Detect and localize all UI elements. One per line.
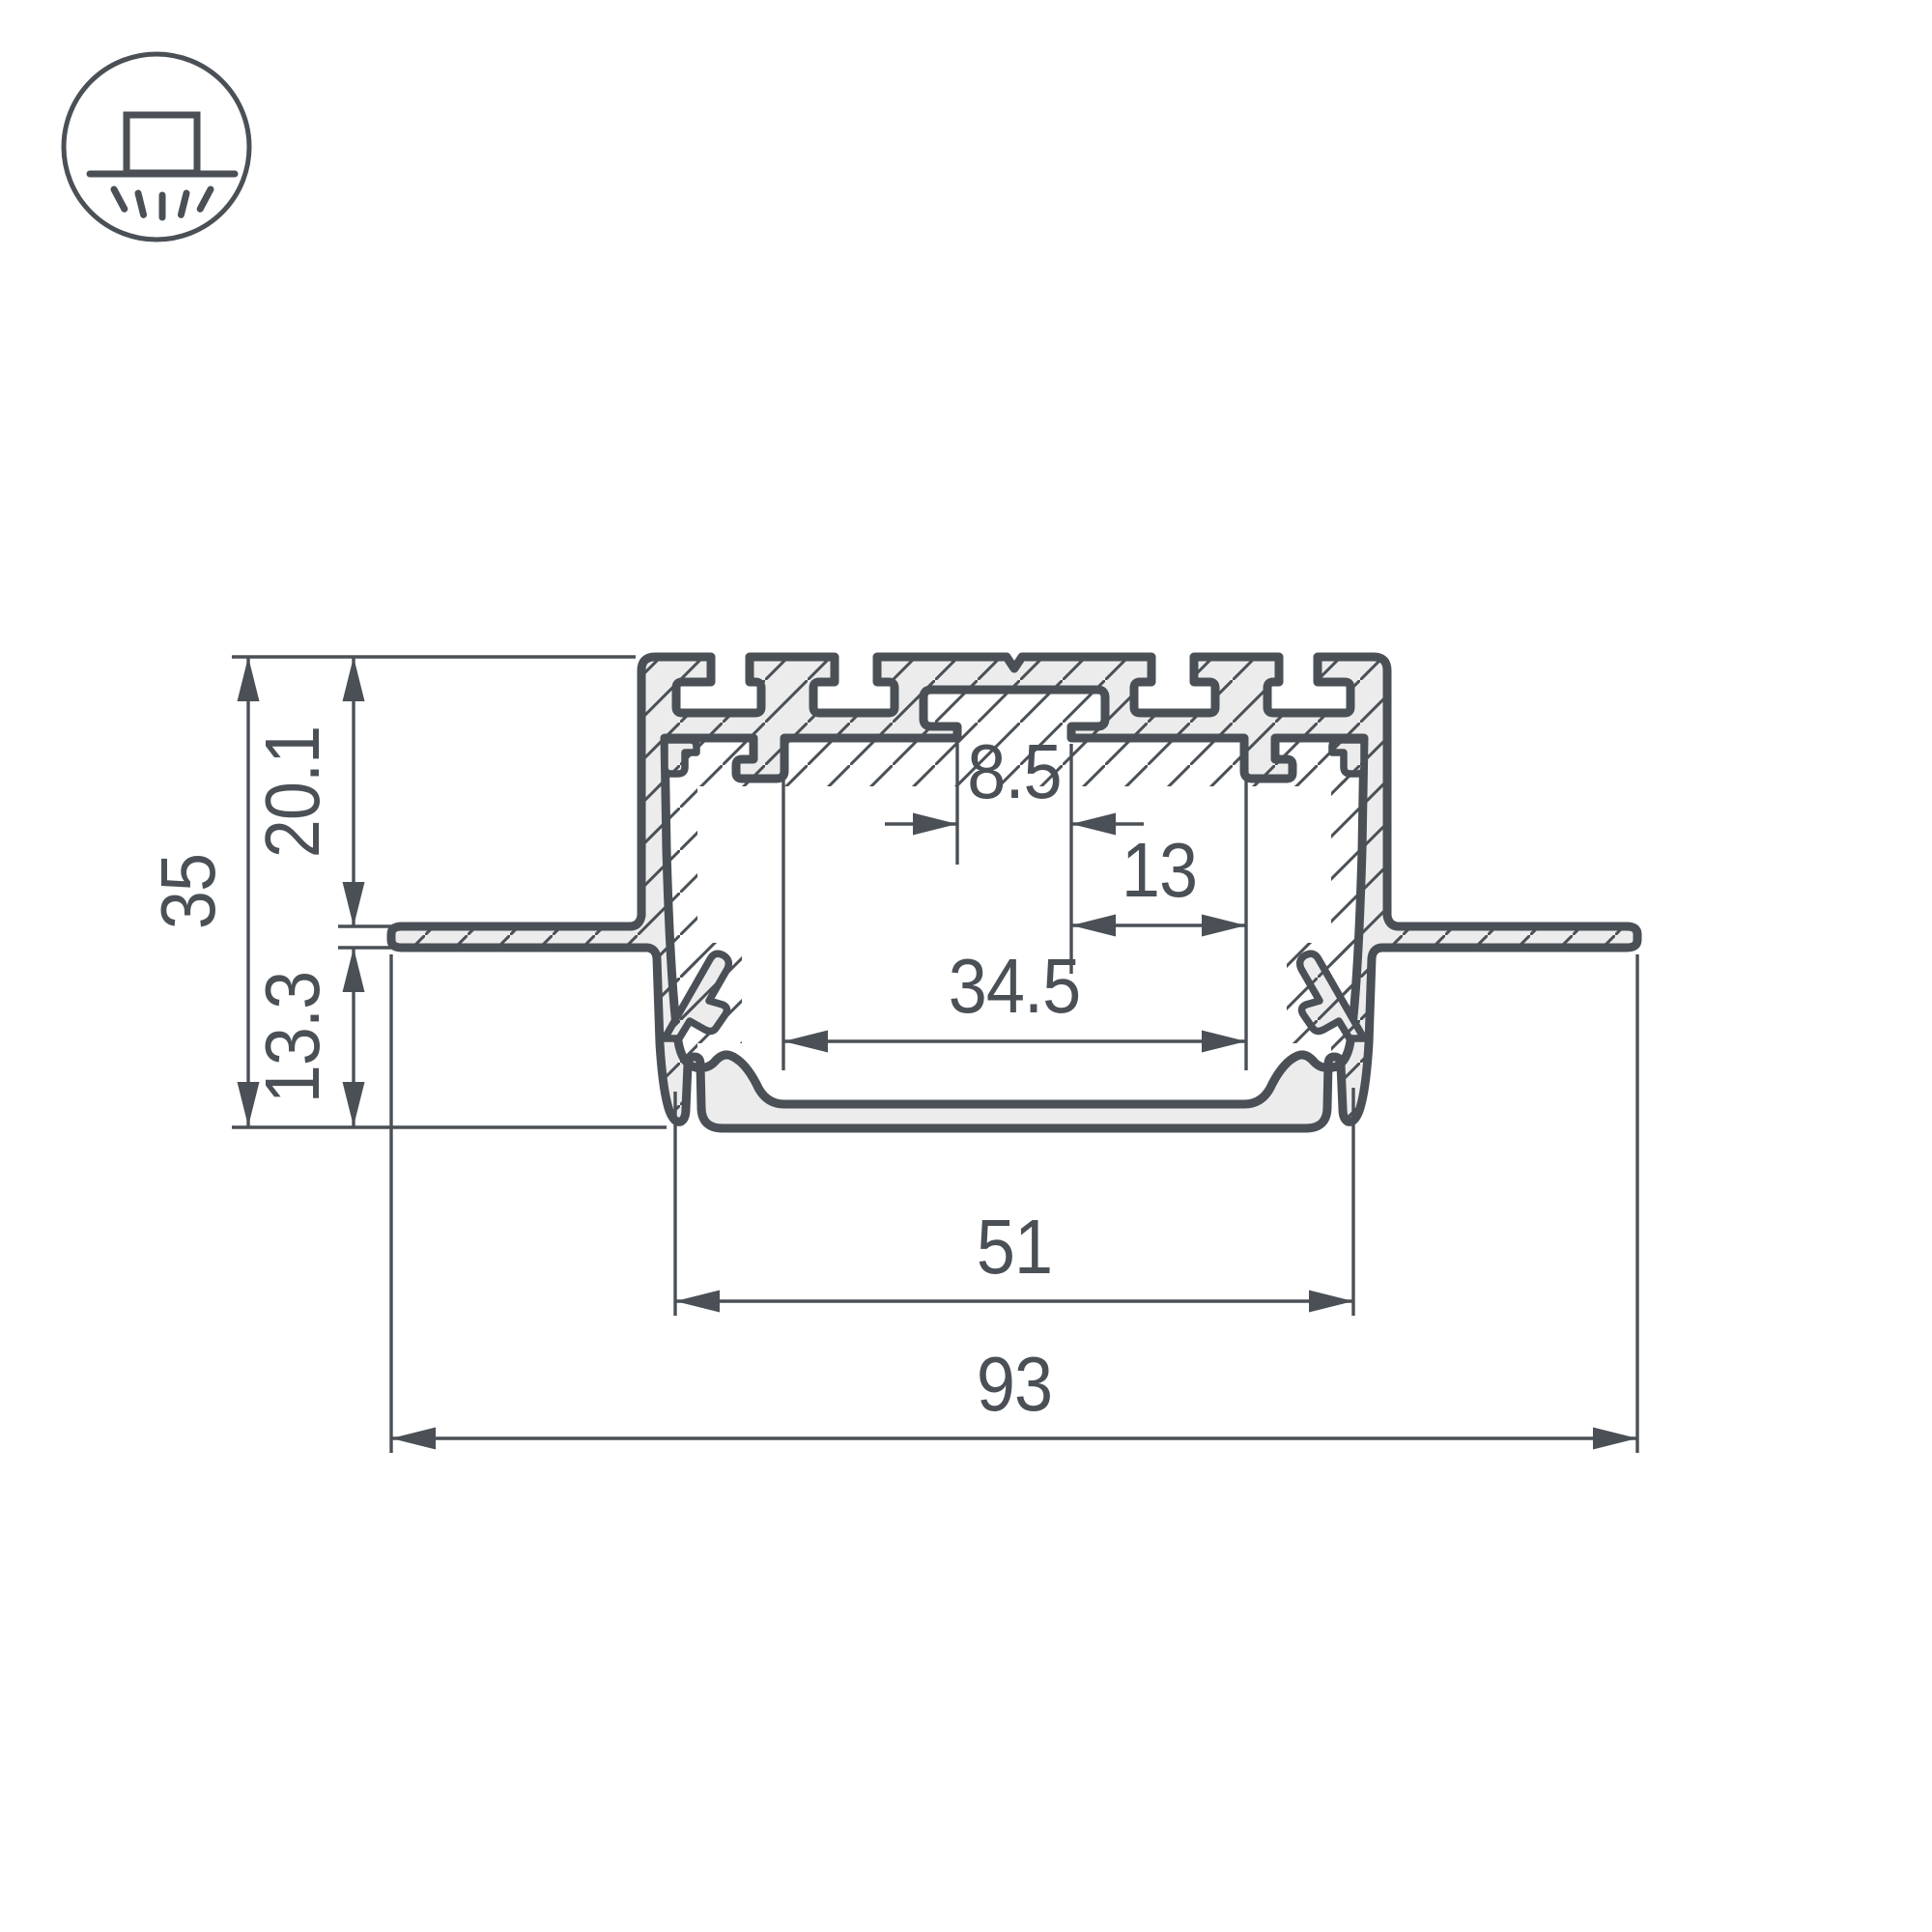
dim-label-upper-height: 20.1: [250, 726, 336, 859]
dim-upper-height: 20.1: [250, 657, 365, 926]
dim-label-inner-width: 34.5: [949, 944, 1081, 1030]
light-rays-icon: [114, 189, 211, 217]
dim-total-height: 35: [146, 657, 260, 1126]
technical-drawing: 35 20.1 13.3 8.5 13: [0, 0, 1932, 1932]
profile-cross-section: [379, 649, 1650, 1140]
dim-label-center-slot: 8.5: [967, 729, 1061, 815]
dim-slot-offset: 13: [1071, 828, 1246, 937]
page: 35 20.1 13.3 8.5 13: [0, 0, 1932, 1932]
dim-label-lower-height: 13.3: [250, 972, 336, 1104]
section-hatching: [379, 649, 1650, 1140]
dim-body-width: 51: [675, 1205, 1353, 1313]
dim-label-overall-width: 93: [977, 1342, 1052, 1428]
dim-label-slot-offset: 13: [1122, 828, 1197, 914]
recessed-box-icon: [127, 115, 197, 173]
icon-circle: [64, 54, 249, 240]
dim-label-body-width: 51: [977, 1205, 1052, 1291]
dim-inner-width: 34.5: [783, 944, 1246, 1053]
mount-type-icon: [64, 54, 249, 240]
dim-label-total-height: 35: [146, 854, 232, 929]
dim-overall-width: 93: [391, 1342, 1637, 1450]
dim-lower-height: 13.3: [250, 948, 365, 1126]
